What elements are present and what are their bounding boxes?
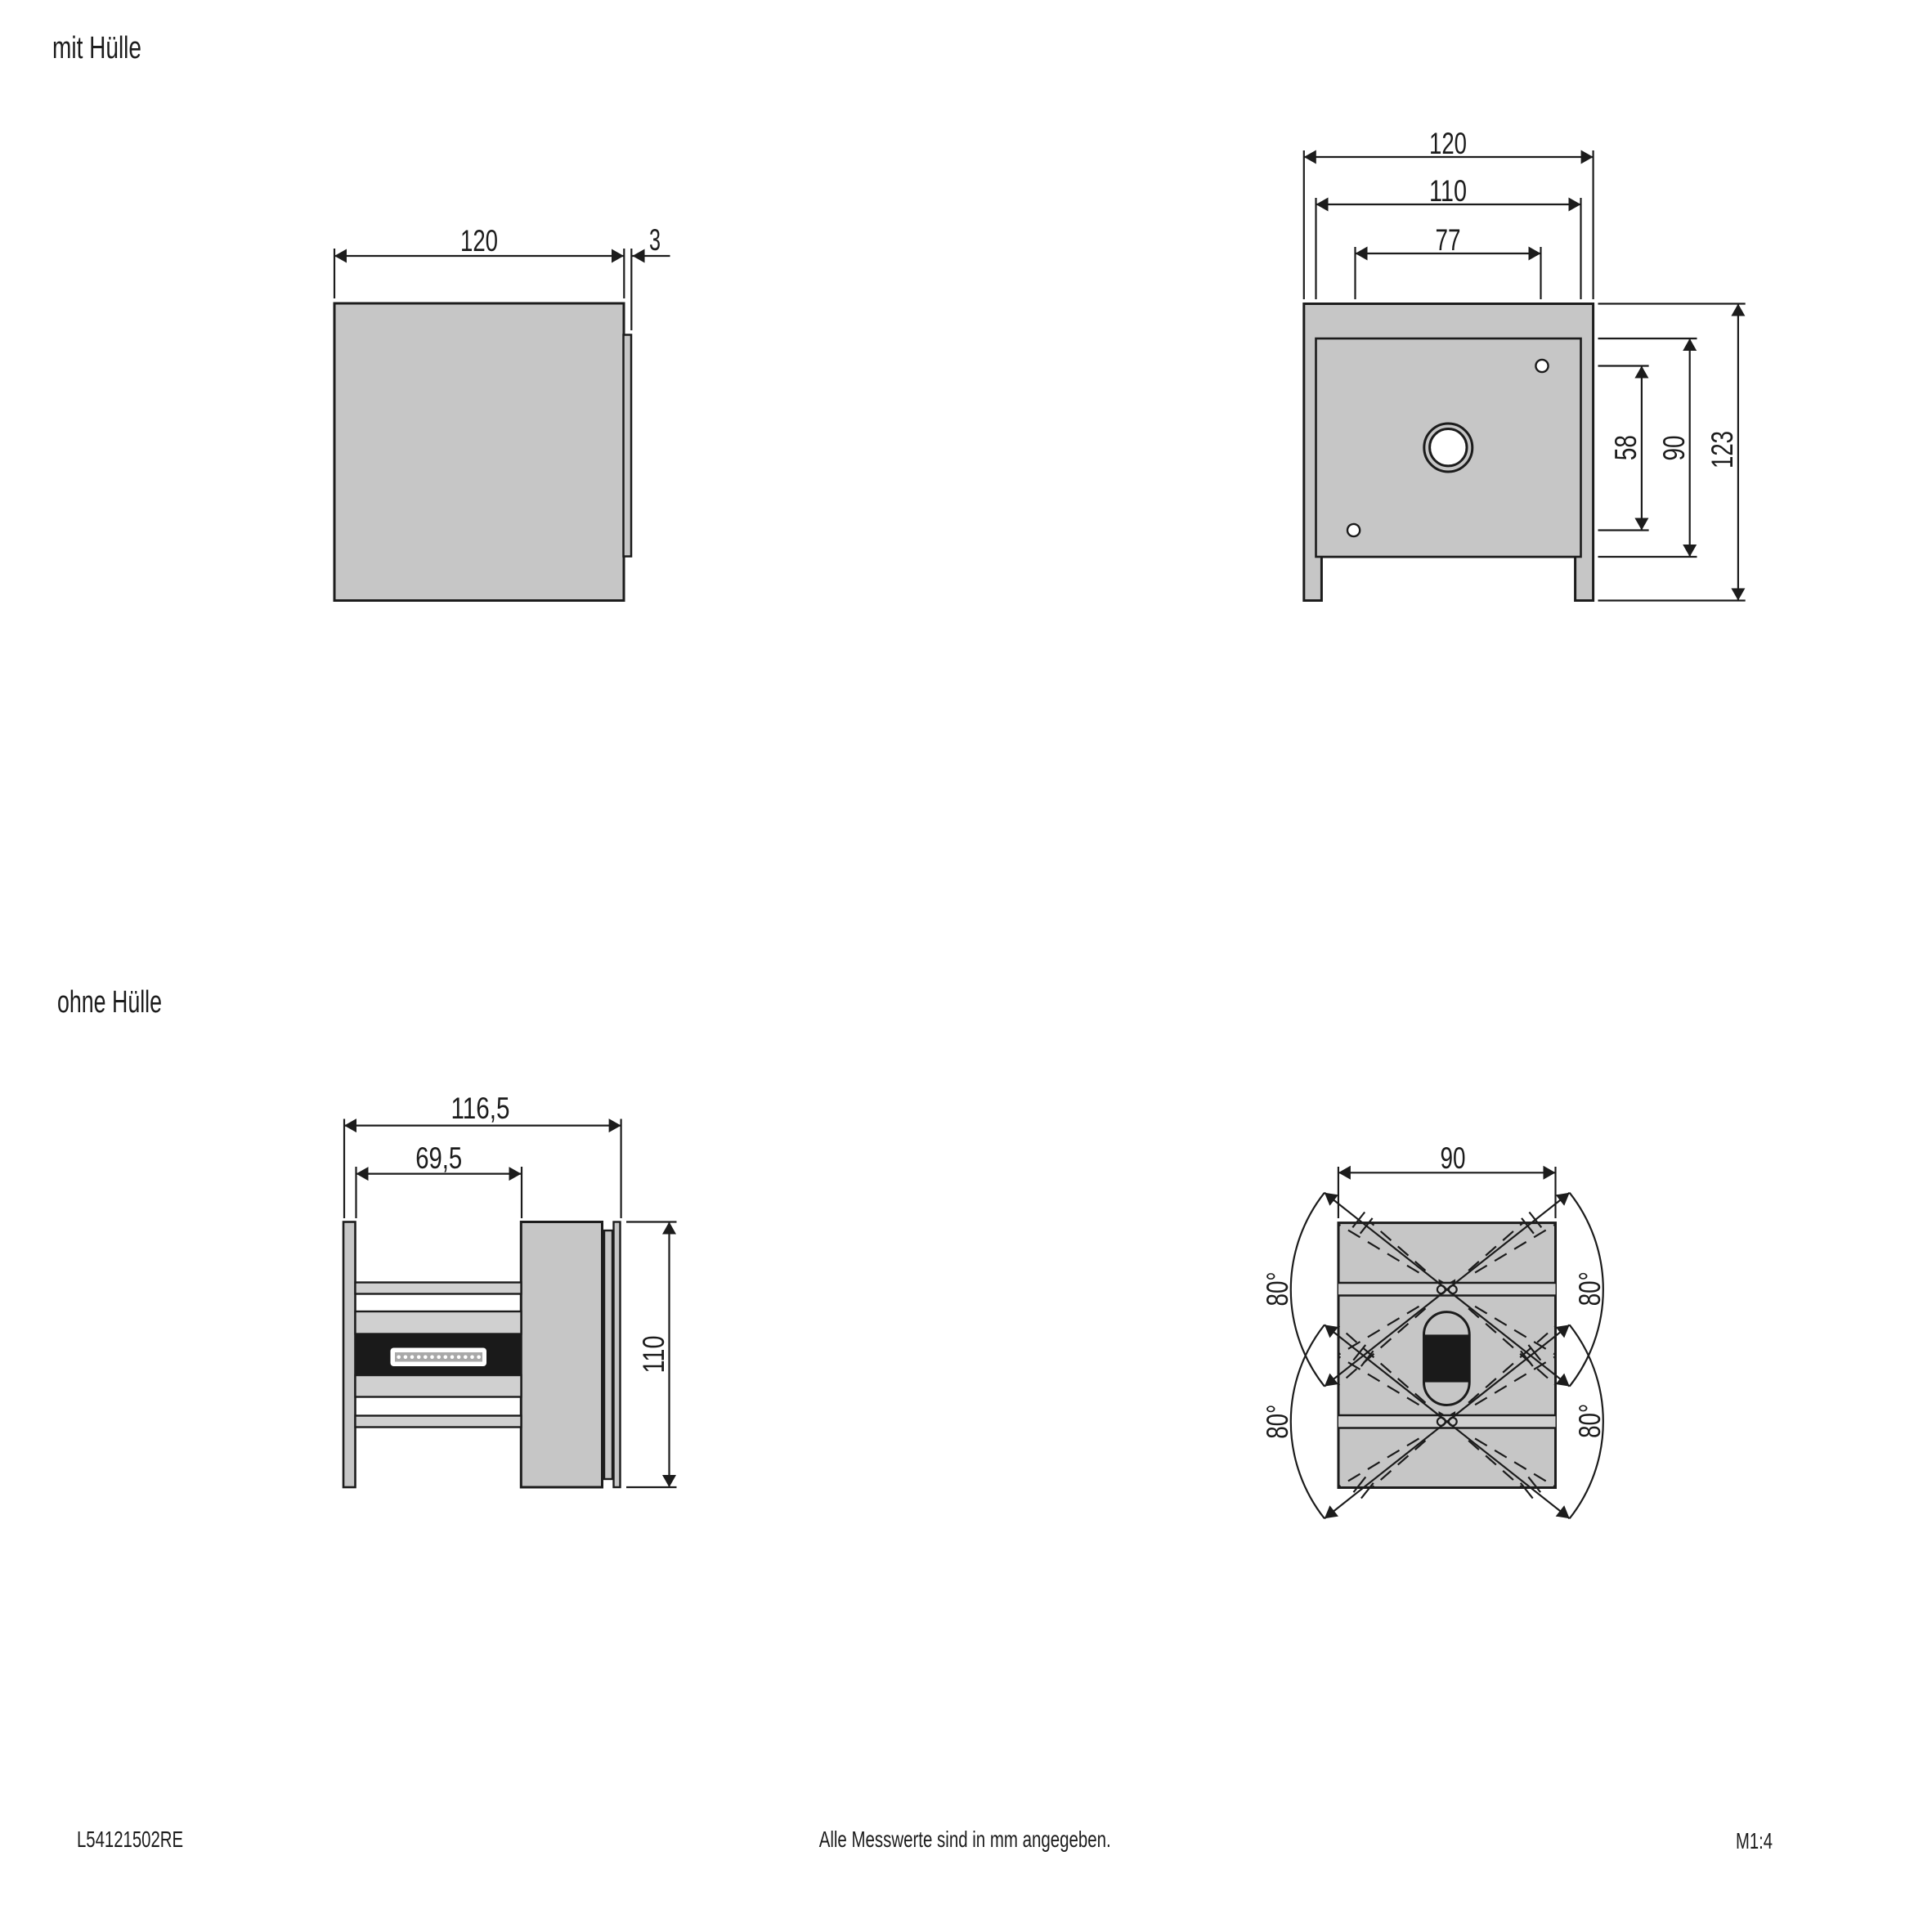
svg-text:77: 77	[1436, 223, 1461, 257]
svg-text:80°: 80°	[1261, 1272, 1294, 1307]
svg-text:ohne Hülle: ohne Hülle	[57, 985, 162, 1020]
svg-text:69,5: 69,5	[415, 1141, 462, 1175]
svg-text:116,5: 116,5	[451, 1092, 510, 1125]
svg-text:120: 120	[460, 224, 498, 258]
svg-text:58: 58	[1609, 435, 1643, 460]
svg-text:80°: 80°	[1261, 1405, 1294, 1439]
svg-text:mit Hülle: mit Hülle	[52, 31, 141, 65]
svg-text:90: 90	[1441, 1141, 1466, 1175]
svg-text:L54121502RE: L54121502RE	[77, 1827, 183, 1852]
svg-text:90: 90	[1657, 436, 1691, 461]
svg-text:110: 110	[637, 1336, 670, 1374]
svg-text:Alle Messwerte sind in mm ange: Alle Messwerte sind in mm angegeben.	[819, 1827, 1111, 1852]
svg-text:80°: 80°	[1573, 1404, 1607, 1438]
svg-text:123: 123	[1706, 431, 1739, 468]
svg-text:110: 110	[1429, 174, 1467, 208]
svg-text:80°: 80°	[1573, 1271, 1607, 1306]
svg-text:120: 120	[1429, 127, 1467, 160]
svg-text:M1:4: M1:4	[1736, 1828, 1773, 1854]
svg-text:3: 3	[649, 223, 661, 257]
